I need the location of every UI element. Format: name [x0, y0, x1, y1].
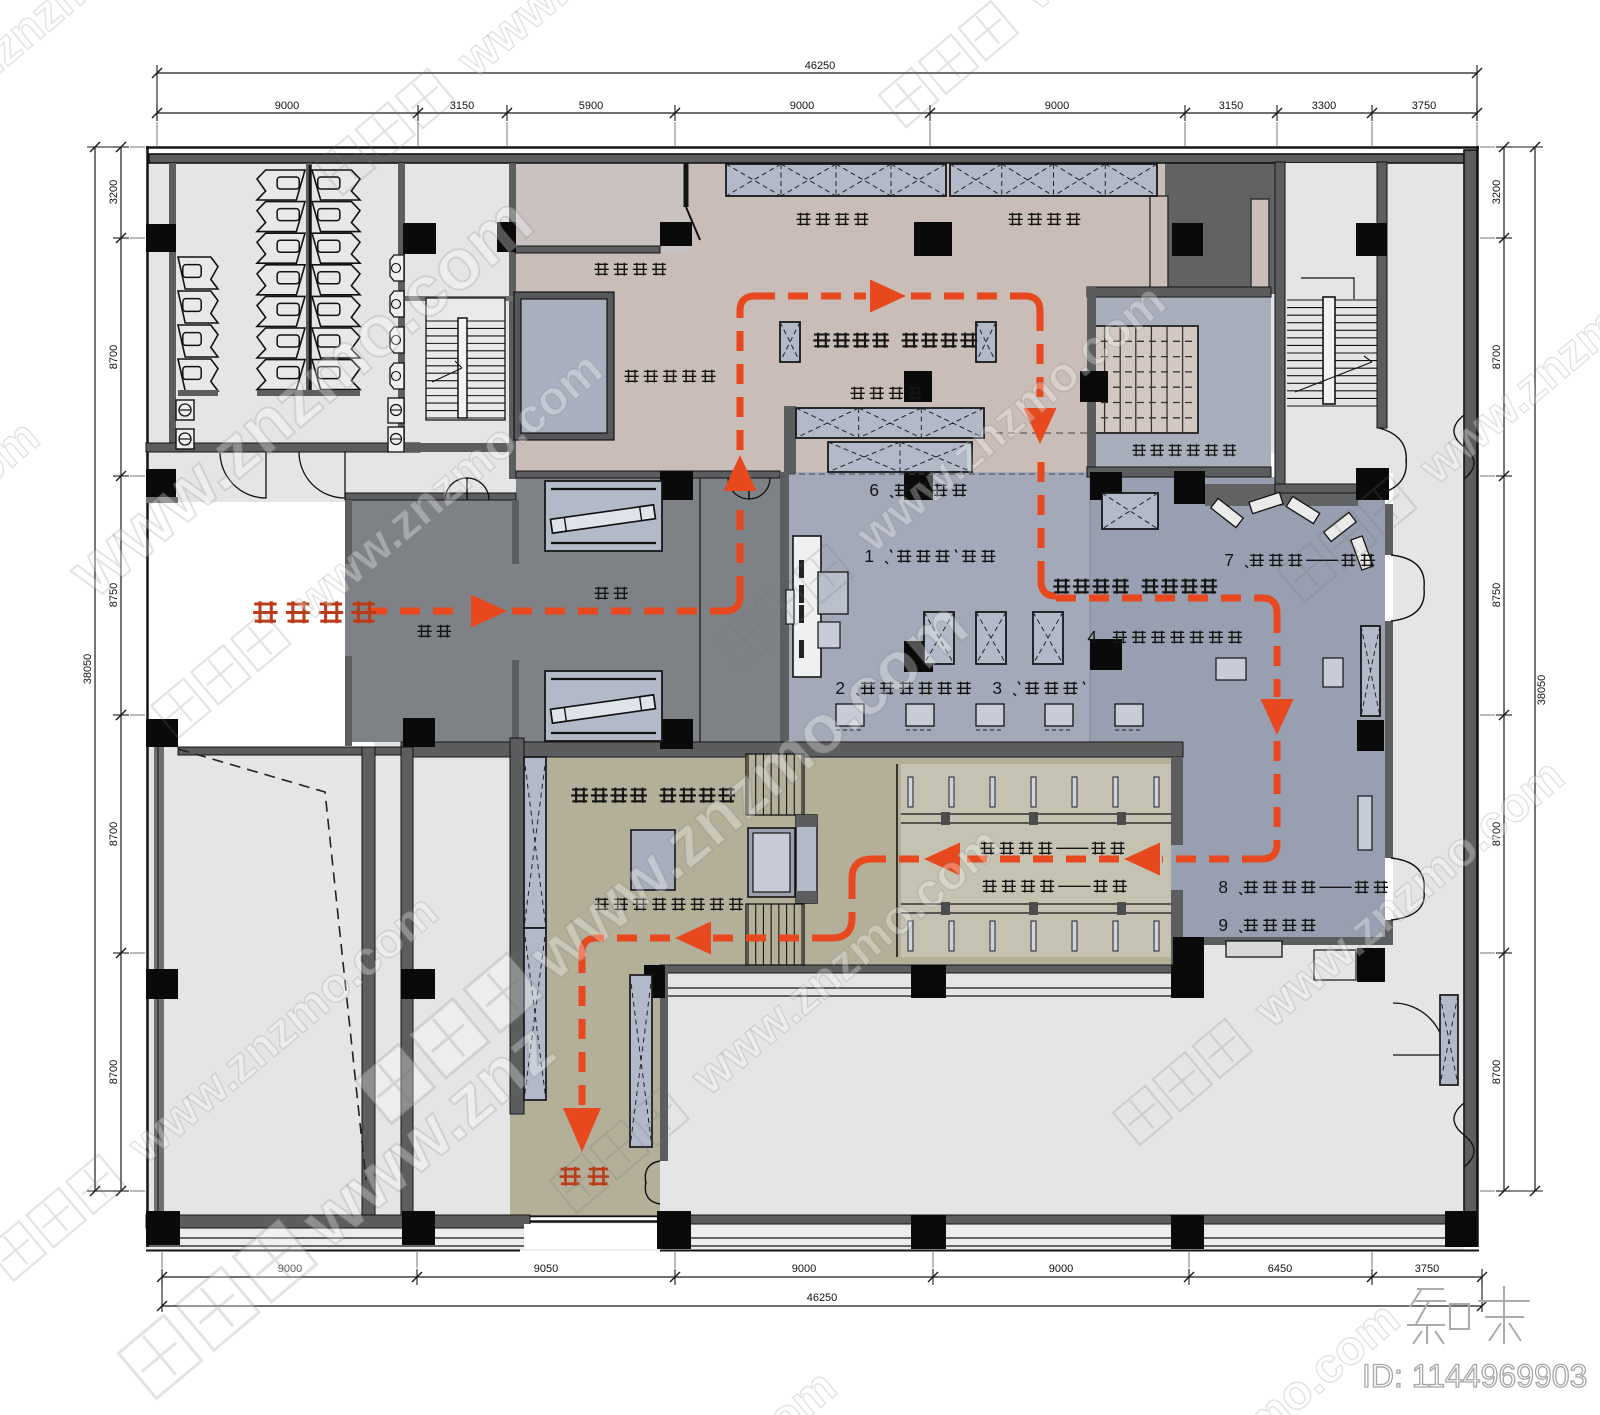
svg-text:8750: 8750 [1491, 583, 1503, 607]
svg-text:46250: 46250 [805, 60, 836, 72]
svg-text:5900: 5900 [579, 100, 603, 112]
svg-text:8: 8 [1218, 877, 1228, 897]
svg-text:3150: 3150 [1219, 100, 1243, 112]
svg-text:9000: 9000 [1049, 1263, 1073, 1275]
svg-text:9050: 9050 [534, 1263, 558, 1275]
svg-text:3: 3 [992, 678, 1002, 698]
svg-text:6450: 6450 [1268, 1263, 1292, 1275]
svg-text:3750: 3750 [1412, 100, 1436, 112]
svg-text:3300: 3300 [1312, 100, 1336, 112]
svg-text:9000: 9000 [790, 100, 814, 112]
svg-text:8700: 8700 [108, 1060, 120, 1084]
svg-text:8700: 8700 [108, 345, 120, 369]
svg-text:9000: 9000 [1045, 100, 1069, 112]
svg-text:3200: 3200 [1491, 180, 1503, 204]
svg-text:8700: 8700 [1491, 345, 1503, 369]
svg-text:9: 9 [1218, 915, 1228, 935]
svg-text:8700: 8700 [108, 822, 120, 846]
svg-text:38050: 38050 [1536, 675, 1548, 706]
svg-text:4: 4 [1087, 627, 1097, 647]
svg-text:7: 7 [1224, 550, 1234, 570]
svg-text:3750: 3750 [1415, 1263, 1439, 1275]
svg-text:8700: 8700 [1491, 1060, 1503, 1084]
svg-text:3200: 3200 [108, 180, 120, 204]
svg-text:38050: 38050 [82, 654, 94, 685]
svg-text:46250: 46250 [807, 1292, 838, 1304]
svg-text:ID: 1144969903: ID: 1144969903 [1362, 1358, 1587, 1394]
svg-text:9000: 9000 [275, 100, 299, 112]
svg-text:9000: 9000 [792, 1263, 816, 1275]
